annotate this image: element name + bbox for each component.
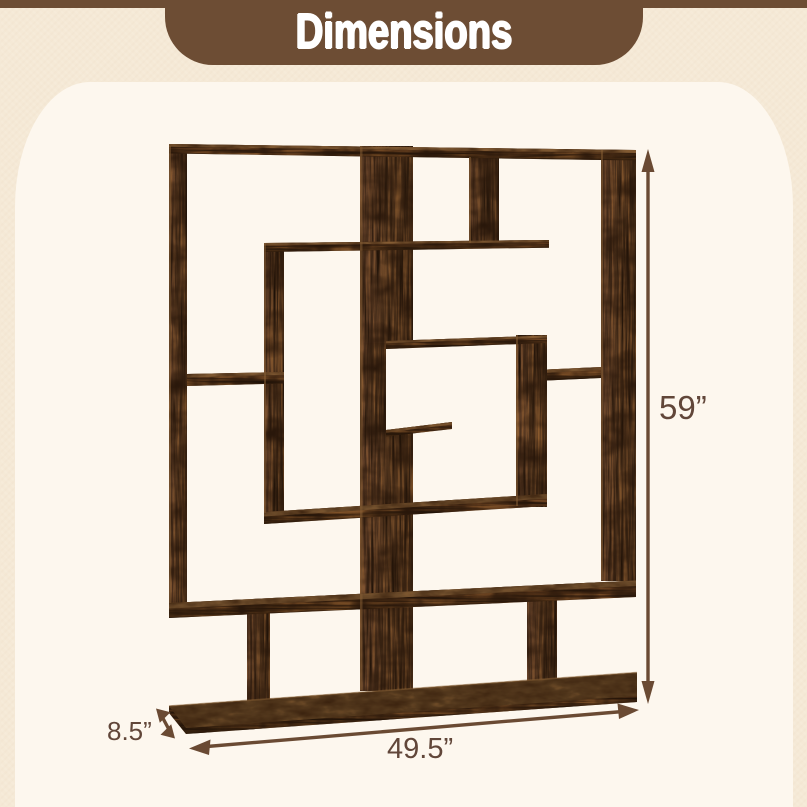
svg-text:49.5”: 49.5”	[387, 733, 453, 765]
svg-text:59”: 59”	[659, 389, 707, 426]
svg-text:8.5”: 8.5”	[107, 716, 152, 746]
